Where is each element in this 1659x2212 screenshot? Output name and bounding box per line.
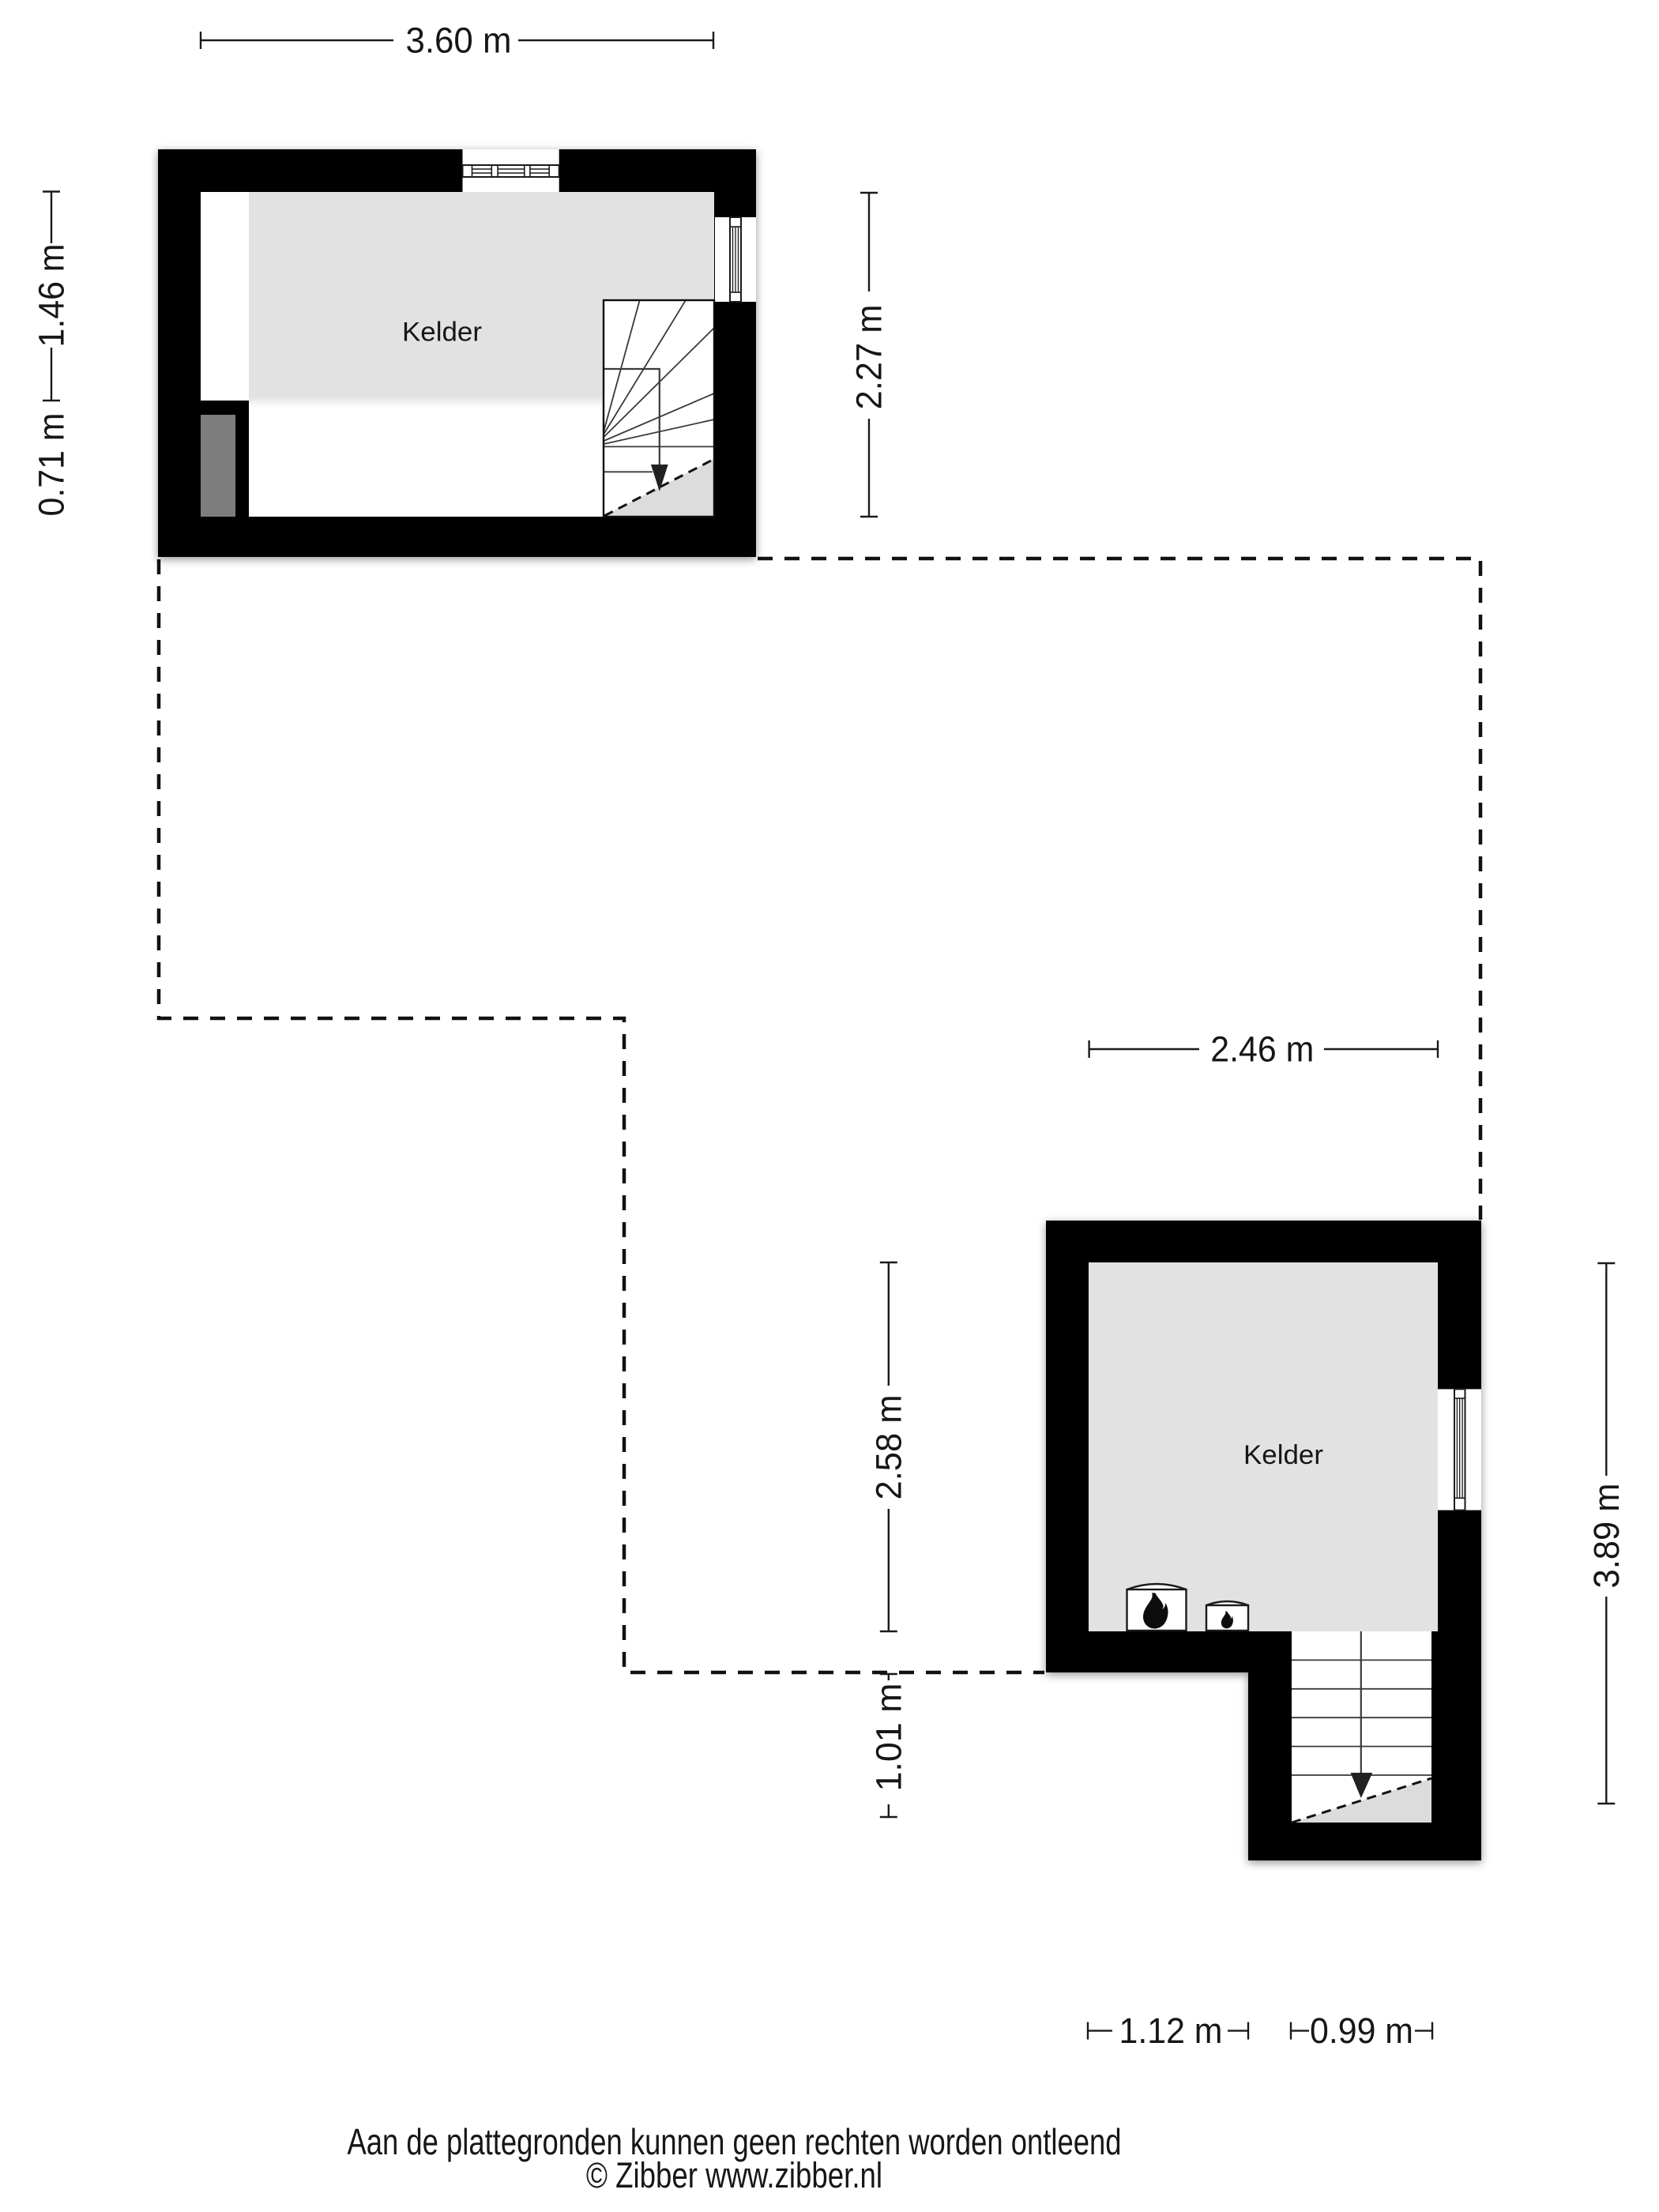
svg-text:1.46 m: 1.46 m <box>32 244 72 348</box>
svg-text:0.99 m: 0.99 m <box>1310 2011 1413 2051</box>
svg-text:2.27 m: 2.27 m <box>849 305 890 410</box>
svg-text:1.01 m: 1.01 m <box>868 1683 908 1792</box>
svg-text:1.12 m: 1.12 m <box>1119 2011 1223 2051</box>
svg-text:2.58 m: 2.58 m <box>868 1395 908 1500</box>
svg-text:3.60 m: 3.60 m <box>406 21 512 61</box>
svg-text:0.71 m: 0.71 m <box>32 413 72 517</box>
svg-text:Kelder: Kelder <box>1243 1440 1323 1470</box>
svg-text:2.46 m: 2.46 m <box>1210 1029 1314 1070</box>
svg-text:© Zibber www.zibber.nl: © Zibber www.zibber.nl <box>586 2155 882 2195</box>
svg-text:Kelder: Kelder <box>402 318 482 348</box>
svg-text:3.89 m: 3.89 m <box>1586 1484 1627 1589</box>
